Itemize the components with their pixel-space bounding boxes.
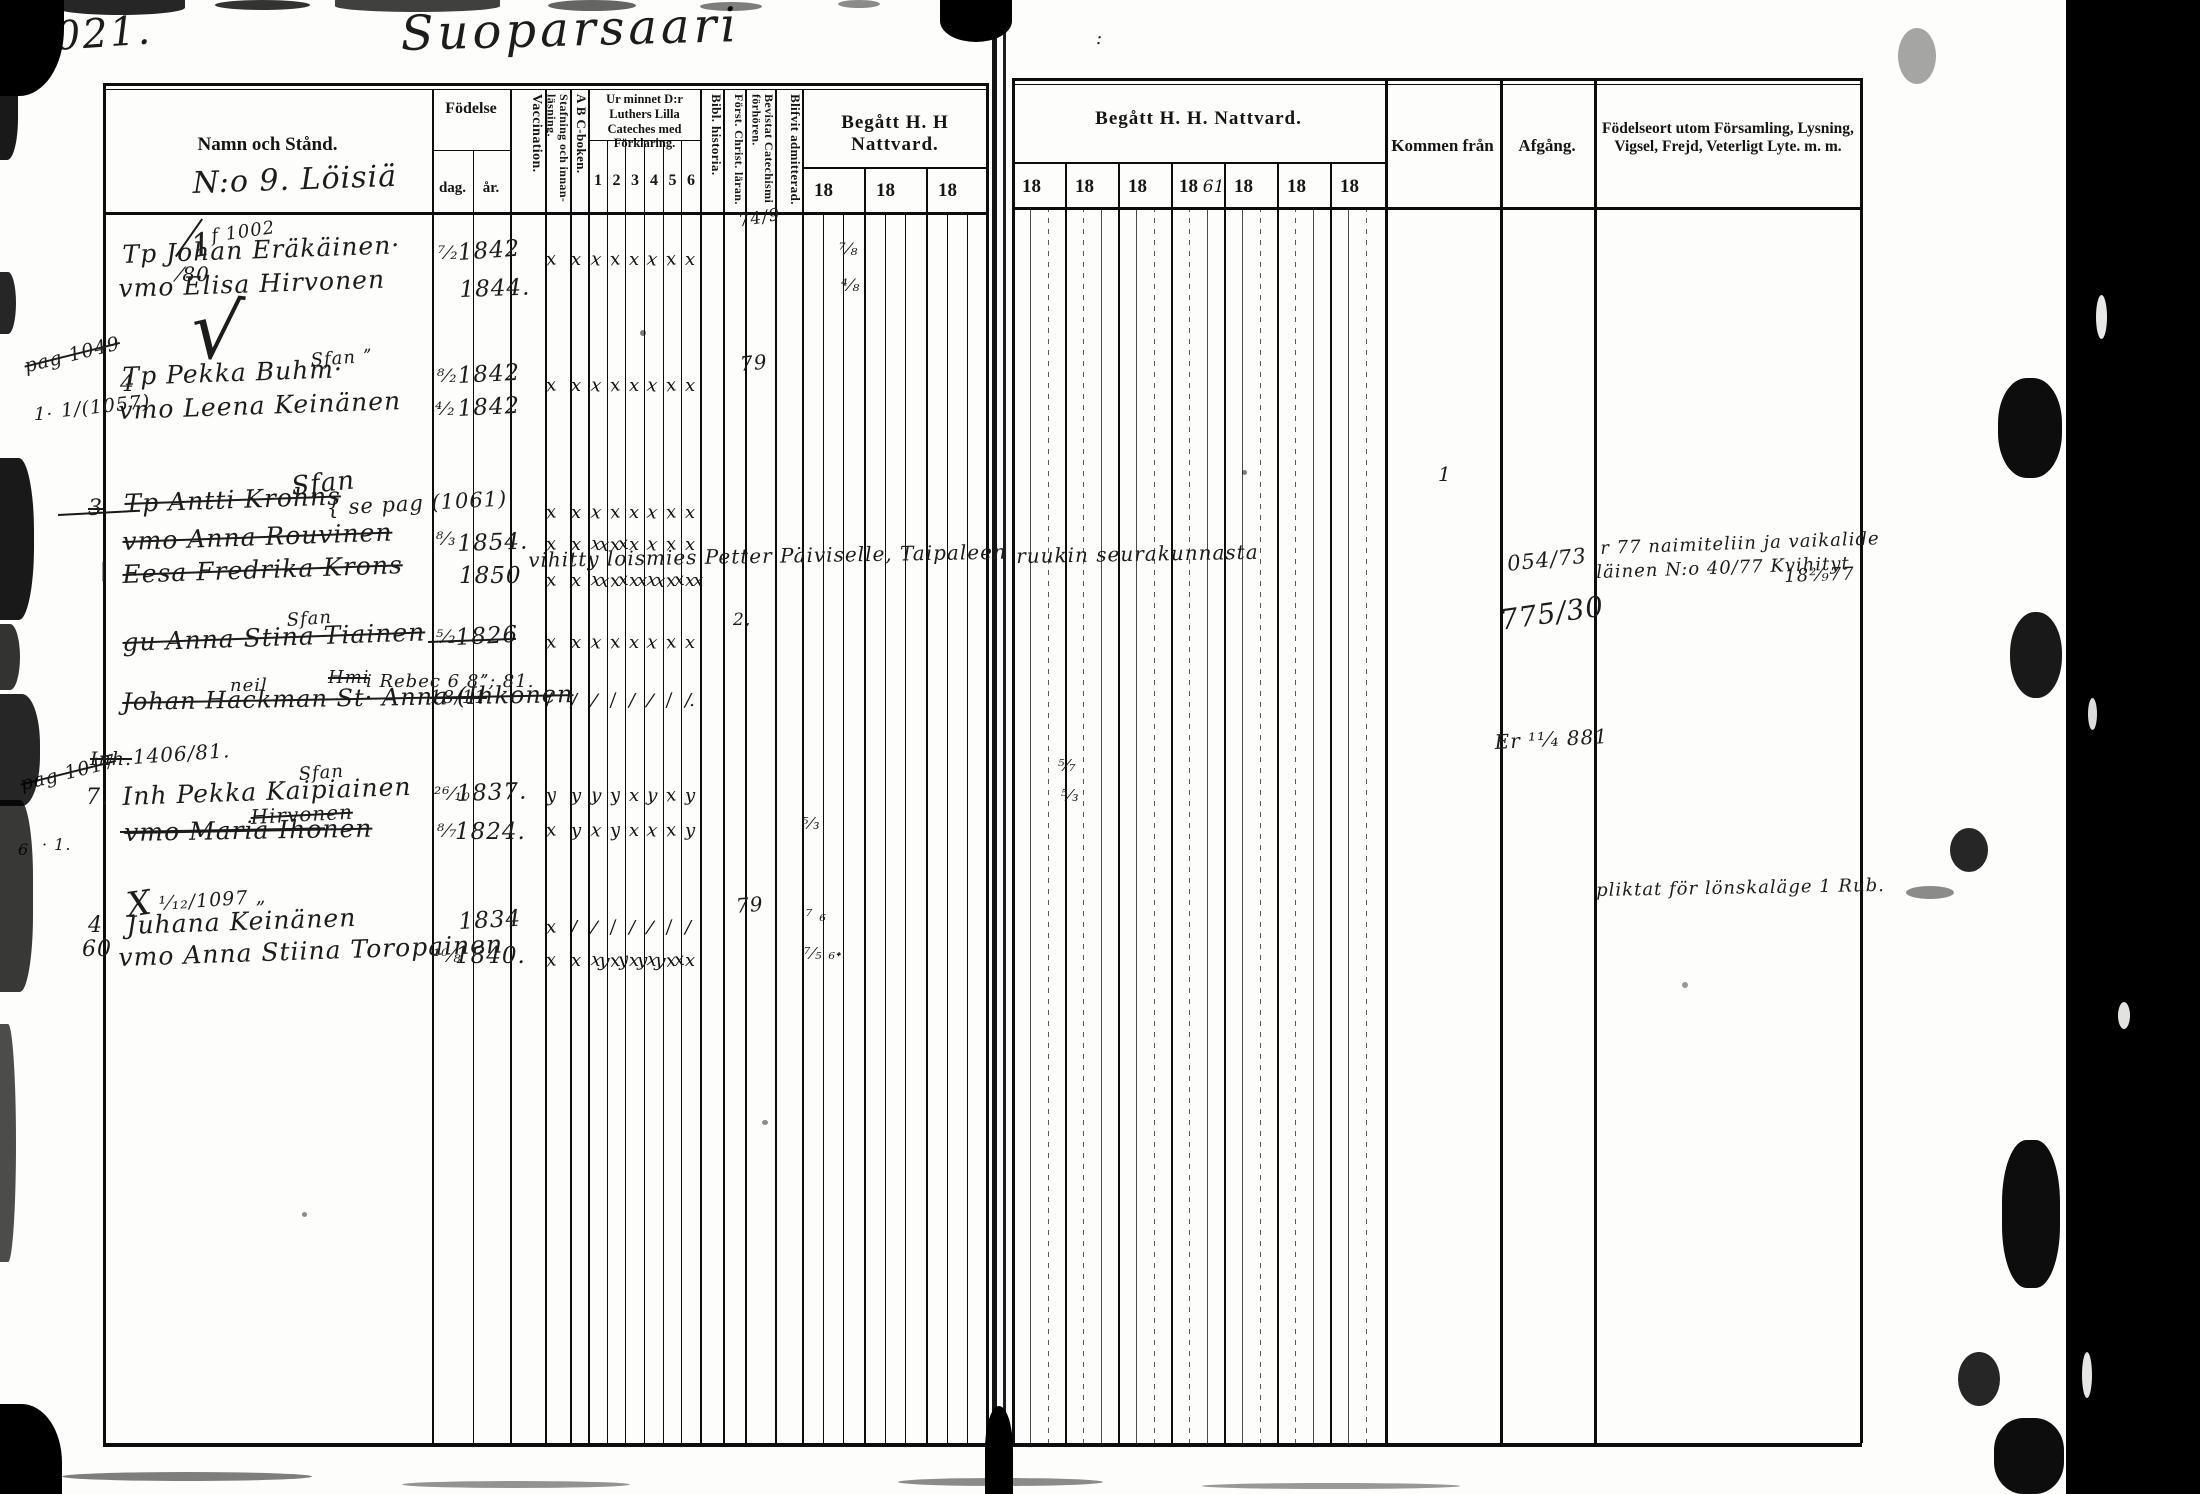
grid-line-vertical bbox=[926, 167, 928, 1443]
col-header-3: 3 bbox=[626, 172, 644, 191]
handwritten-note: 60 bbox=[82, 937, 112, 962]
check-mark: x bbox=[629, 375, 637, 396]
check-mark: x bbox=[685, 632, 693, 653]
check-mark: x bbox=[590, 632, 601, 654]
handwritten-note: ⁄80 bbox=[178, 262, 210, 286]
parish-register-scan: 1021. Suoparsaari Namn och Stånd. N:o 9.… bbox=[0, 0, 2200, 1494]
check-mark: / bbox=[665, 917, 672, 938]
scan-noise-blob bbox=[2096, 295, 2107, 339]
col-header-year-18: 18 bbox=[876, 180, 926, 202]
check-mark: x bbox=[571, 534, 579, 555]
handwritten-note: Sfan bbox=[298, 761, 345, 785]
grid-line-horizontal bbox=[1012, 78, 1862, 81]
grid-line-horizontal bbox=[1012, 207, 1862, 210]
check-mark: xx bbox=[629, 570, 645, 591]
scan-noise-blob bbox=[302, 1212, 307, 1217]
handwritten-note: 7. bbox=[86, 785, 109, 810]
col-header-fodelseort: Födelseort utom Församling, Lysning, Vig… bbox=[1594, 120, 1862, 157]
grid-line-vertical bbox=[1012, 78, 1015, 1443]
handwritten-note: : bbox=[1096, 28, 1103, 49]
grid-line-horizontal bbox=[1012, 162, 1385, 164]
check-mark: x bbox=[629, 534, 637, 555]
scan-noise-blob bbox=[0, 90, 18, 160]
check-mark: x bbox=[571, 502, 579, 523]
check-mark: x bbox=[590, 820, 601, 842]
scan-noise-blob bbox=[0, 800, 33, 992]
handwritten-note: 79 bbox=[739, 350, 768, 376]
handwritten-note: 1850 bbox=[459, 563, 522, 589]
grid-line-vertical bbox=[1118, 162, 1120, 1443]
year-handwritten-annotation: 61 bbox=[1203, 177, 1225, 197]
scan-noise-blob bbox=[402, 1481, 630, 1488]
check-mark: x bbox=[609, 375, 620, 397]
page-fold-line bbox=[1003, 0, 1006, 1494]
check-mark: x bbox=[590, 502, 601, 524]
handwritten-note: vmo Leena Keinänen bbox=[118, 386, 402, 425]
check-mark: x bbox=[571, 375, 579, 396]
scan-noise-blob bbox=[1994, 1418, 2064, 1494]
grid-subline-vertical bbox=[1083, 207, 1084, 1443]
check-mark: /. bbox=[685, 690, 693, 711]
check-mark: xx bbox=[609, 533, 628, 556]
check-mark: / bbox=[571, 917, 575, 938]
handwritten-note: 1· bbox=[34, 404, 53, 425]
handwritten-note: vmo Anna Rouvinen bbox=[122, 518, 393, 556]
check-mark: x bbox=[665, 375, 676, 397]
grid-line-vertical bbox=[432, 89, 434, 1443]
grid-line-vertical bbox=[625, 140, 626, 1443]
check-mark: / bbox=[646, 690, 653, 711]
grid-subline-vertical bbox=[1348, 207, 1349, 1443]
handwritten-note: 054/73 bbox=[1506, 544, 1588, 576]
check-mark: x bbox=[571, 570, 579, 591]
scan-noise-blob bbox=[1682, 982, 1688, 988]
scan-noise-blob bbox=[2118, 1002, 2130, 1029]
check-mark: x bbox=[545, 820, 556, 842]
col-header-namn-och-stand: Namn och Stånd. bbox=[103, 134, 432, 156]
handwritten-note: 1837. bbox=[456, 779, 528, 807]
grid-line-vertical bbox=[663, 140, 664, 1443]
grid-subline-vertical bbox=[1048, 207, 1049, 1443]
check-mark: x bbox=[545, 570, 556, 592]
grid-subline-vertical bbox=[1189, 207, 1190, 1443]
check-mark: x bbox=[571, 249, 579, 270]
col-header-year-18: 18 bbox=[814, 180, 864, 202]
check-mark: x bbox=[685, 375, 693, 396]
scan-noise-blob bbox=[0, 1024, 16, 1262]
handwritten-note: vmo Elisa Hirvonen bbox=[118, 265, 386, 303]
year-printed: 18 bbox=[1179, 176, 1198, 197]
grid-line-vertical bbox=[864, 167, 866, 1443]
fodelseort-line1: Födelseort utom Församling, Lysning, bbox=[1594, 120, 1862, 138]
grid-subline-vertical bbox=[1295, 207, 1296, 1443]
handwritten-note: 18²⁄₉77 bbox=[1784, 564, 1855, 587]
handwritten-note: 3 bbox=[88, 496, 103, 521]
handwritten-note: ⁴⁄₈ bbox=[841, 276, 860, 296]
grid-line-vertical bbox=[823, 215, 824, 1443]
handwritten-note: ⁵⁄₃ bbox=[1061, 786, 1080, 805]
scan-noise-blob bbox=[1242, 470, 1247, 475]
check-mark: x bbox=[609, 502, 620, 524]
scan-noise-blob bbox=[55, 0, 185, 15]
check-mark: xx bbox=[665, 949, 684, 972]
scan-noise-blob bbox=[548, 0, 636, 11]
check-mark: x bbox=[646, 502, 657, 524]
check-mark: x bbox=[685, 249, 693, 270]
grid-line-horizontal bbox=[802, 167, 988, 169]
check-mark: xy bbox=[609, 949, 628, 972]
grid-subline-vertical bbox=[1207, 207, 1208, 1443]
check-mark: x bbox=[609, 249, 620, 271]
col-header-year-18: 18 bbox=[1340, 176, 1359, 198]
check-mark: x bbox=[545, 534, 556, 556]
col-header-4: 4 bbox=[645, 172, 663, 191]
handwritten-note: ⁷⁄₅ ₆˖ bbox=[804, 944, 843, 963]
grid-line-vertical bbox=[723, 89, 725, 1443]
scan-noise-blob bbox=[898, 1478, 1103, 1486]
grid-line-vertical bbox=[607, 140, 608, 1443]
check-mark: x bbox=[571, 632, 579, 653]
scan-noise-blob bbox=[2082, 1352, 2092, 1398]
handwritten-note: Johan Hackman St· Anna (Ihkonen bbox=[122, 680, 574, 716]
check-mark: xx bbox=[609, 569, 628, 592]
check-mark: y bbox=[571, 820, 579, 841]
check-mark: x bbox=[590, 249, 601, 271]
check-mark: x bbox=[685, 950, 693, 971]
check-mark: / bbox=[646, 917, 653, 938]
handwritten-note: 1842 bbox=[457, 236, 521, 266]
check-mark: x bbox=[545, 950, 556, 972]
grid-subline-vertical bbox=[1313, 207, 1314, 1443]
check-mark: xx bbox=[685, 570, 701, 591]
col-header-afgang: Afgång. bbox=[1500, 136, 1594, 156]
grid-line-horizontal bbox=[103, 1443, 988, 1447]
grid-line-horizontal bbox=[1012, 84, 1862, 85]
handwritten-note: ruukin seurakunnasta bbox=[1016, 540, 1259, 568]
handwritten-note: 1854. bbox=[457, 529, 529, 557]
page-fold-line bbox=[992, 0, 997, 1494]
col-header-fodelse: Födelse bbox=[432, 100, 510, 119]
check-mark: / bbox=[590, 690, 597, 711]
scan-noise-blob bbox=[838, 0, 880, 8]
check-mark: x bbox=[646, 249, 657, 271]
handwritten-note: Eesa Fredrika Krons bbox=[122, 550, 403, 589]
scan-noise-blob bbox=[1958, 1352, 2000, 1406]
check-mark: x bbox=[629, 249, 637, 270]
handwritten-note: · 1. bbox=[42, 835, 71, 854]
handwritten-note: 1406/81. bbox=[132, 738, 231, 769]
scan-noise-blob bbox=[215, 0, 310, 10]
check-mark: x bbox=[665, 820, 676, 842]
check-mark: x bbox=[646, 375, 657, 397]
check-mark: y bbox=[609, 820, 620, 842]
handwritten-note: ⁵⁄₃ bbox=[802, 814, 821, 833]
handwritten-note: 18/11 bbox=[430, 687, 487, 708]
handwritten-note: 1826 bbox=[455, 622, 519, 651]
col-header-year-18: 18 bbox=[1022, 176, 1041, 198]
check-mark: x bbox=[646, 632, 657, 654]
check-mark: / bbox=[629, 917, 633, 938]
check-mark: x bbox=[646, 820, 657, 842]
grid-subline-vertical bbox=[1366, 207, 1367, 1443]
col-header-year-18: 18 bbox=[938, 180, 988, 202]
grid-line-vertical bbox=[1594, 78, 1597, 1443]
grid-line-vertical bbox=[1860, 78, 1863, 1443]
scan-noise-blob bbox=[0, 272, 16, 334]
scan-noise-blob bbox=[1950, 828, 1988, 872]
check-mark: x bbox=[609, 632, 620, 654]
check-mark: x bbox=[590, 375, 601, 397]
handwritten-note: Sfan ˮ bbox=[310, 346, 373, 371]
grid-line-vertical bbox=[775, 89, 777, 1443]
handwritten-note: | bbox=[100, 558, 108, 582]
check-mark: / bbox=[665, 690, 672, 711]
handwritten-note: ⁷ ₆ bbox=[806, 906, 827, 925]
handwritten-note: Er ¹¹⁄₄ 881 bbox=[1494, 724, 1609, 754]
grid-line-horizontal bbox=[103, 83, 988, 86]
handwritten-note: ⁵⁄₂ bbox=[436, 627, 456, 648]
check-mark: x bbox=[629, 632, 637, 653]
check-mark: x bbox=[545, 917, 556, 939]
check-mark: x bbox=[629, 820, 637, 841]
check-mark: xy bbox=[590, 949, 609, 972]
fodelseort-line2: Vigsel, Frejd, Veterligt Lyte. m. m. bbox=[1594, 138, 1862, 156]
check-mark: / bbox=[590, 917, 597, 938]
grid-line-vertical bbox=[843, 215, 844, 1443]
grid-line-vertical bbox=[947, 215, 948, 1443]
check-mark: x bbox=[665, 785, 676, 807]
col-header-forst-christ-laran: Först. Christ. läran. bbox=[724, 94, 745, 210]
check-mark: y bbox=[685, 785, 693, 806]
check-mark: y bbox=[609, 785, 620, 807]
check-mark: / bbox=[609, 690, 616, 711]
grid-line-horizontal bbox=[432, 150, 510, 151]
scan-noise-blob bbox=[2002, 1140, 2060, 1288]
handwritten-note: 1842 bbox=[457, 393, 521, 422]
grid-line-vertical bbox=[1385, 78, 1388, 1443]
check-mark: x bbox=[629, 785, 637, 806]
grid-line-vertical bbox=[1500, 78, 1503, 1443]
check-mark: / bbox=[629, 690, 633, 711]
check-mark: xy bbox=[646, 949, 665, 972]
check-mark: / bbox=[609, 917, 616, 938]
check-mark: x bbox=[685, 534, 693, 555]
grid-line-vertical bbox=[681, 140, 682, 1443]
grid-subline-vertical bbox=[1154, 207, 1155, 1443]
scan-noise-blob bbox=[335, 0, 500, 12]
handwritten-note: 2, bbox=[733, 610, 751, 630]
grid-line-horizontal bbox=[1012, 1443, 1862, 1447]
col-header-begatt-nattvard-right: Begått H. H. Nattvard. bbox=[1012, 108, 1385, 130]
scan-noise-blob bbox=[640, 330, 646, 336]
check-mark: x bbox=[665, 534, 676, 556]
check-mark: y bbox=[545, 785, 556, 807]
scan-noise-blob bbox=[700, 2, 762, 11]
col-header-year-18: 18 bbox=[1128, 176, 1147, 198]
grid-line-vertical bbox=[700, 89, 702, 1443]
scan-noise-blob bbox=[2010, 612, 2062, 698]
grid-line-vertical bbox=[1171, 162, 1173, 1443]
handwritten-note: 1842 bbox=[457, 360, 521, 389]
col-header-bibl-historia: Bibl. historia. bbox=[701, 94, 723, 210]
check-mark: y bbox=[590, 785, 601, 807]
grid-line-vertical bbox=[802, 89, 804, 1443]
grid-line-vertical bbox=[545, 89, 547, 1443]
scan-noise-blob bbox=[2066, 0, 2200, 1494]
handwritten-note: ⁷⁄₈ bbox=[839, 240, 858, 260]
col-header-vaccination: Vaccination. bbox=[515, 94, 543, 210]
grid-subline-vertical bbox=[1260, 207, 1261, 1443]
handwritten-note: pag 1049 bbox=[22, 332, 122, 377]
grid-line-vertical bbox=[588, 89, 590, 1443]
check-mark: x bbox=[665, 502, 676, 524]
check-mark: xy bbox=[629, 950, 645, 971]
col-header-begatt-nattvard-left: Begått H. H Nattvard. bbox=[802, 112, 988, 157]
namn-column-annotation: N:o 9. Löisiä bbox=[192, 159, 398, 201]
grid-subline-vertical bbox=[1136, 207, 1137, 1443]
grid-line-vertical bbox=[1277, 162, 1279, 1443]
scan-noise-blob bbox=[0, 624, 20, 690]
check-mark: y bbox=[646, 785, 657, 807]
grid-subline-vertical bbox=[1242, 207, 1243, 1443]
scan-noise-blob bbox=[62, 1472, 312, 1481]
handwritten-note: 1 bbox=[1438, 462, 1452, 486]
handwritten-note: ⁴⁄₂ bbox=[435, 399, 455, 420]
handwritten-note: 775/30 bbox=[1498, 589, 1606, 636]
check-mark: x bbox=[545, 375, 556, 397]
check-mark: / bbox=[685, 917, 689, 938]
grid-line-vertical bbox=[986, 83, 989, 1443]
handwritten-note: ⁵⁄₇ bbox=[1058, 756, 1077, 775]
check-mark: xx bbox=[646, 569, 665, 592]
scan-noise-blob bbox=[0, 458, 34, 620]
col-header-ar: år. bbox=[472, 180, 510, 198]
handwritten-note: ⁷⁄₂ bbox=[438, 243, 458, 264]
check-mark: x bbox=[545, 502, 556, 524]
grid-line-horizontal bbox=[588, 140, 700, 141]
check-mark: x bbox=[629, 502, 637, 523]
col-header-year-18-61: 18 61 bbox=[1179, 176, 1224, 198]
handwritten-note: gu Anna Stina Tiainen bbox=[122, 617, 426, 657]
grid-line-vertical bbox=[1224, 162, 1226, 1443]
scan-noise-blob bbox=[940, 0, 1012, 42]
check-mark: y bbox=[571, 785, 579, 806]
check-mark: x bbox=[685, 502, 693, 523]
check-mark: x bbox=[545, 632, 556, 654]
col-header-1: 1 bbox=[589, 172, 607, 191]
handwritten-note: ⁸⁄₃ bbox=[436, 529, 456, 550]
check-mark: xx bbox=[590, 533, 609, 556]
check-mark: x bbox=[665, 632, 676, 654]
handwritten-note: 4 bbox=[88, 913, 103, 938]
grid-subline-vertical bbox=[1101, 207, 1102, 1443]
col-header-bevistat-catechismi: Bevistat Catechismi förhören. bbox=[747, 94, 775, 210]
col-header-6: 6 bbox=[682, 172, 700, 191]
col-header-abc-boken: A B C-boken. bbox=[570, 94, 588, 210]
check-mark: xx bbox=[665, 569, 684, 592]
scan-noise-blob bbox=[1898, 28, 1936, 84]
handwritten-note: Tp Johan Eräkäinen· bbox=[122, 230, 401, 269]
col-header-blifvit-admitterad: Blifvit admitterad. bbox=[777, 94, 802, 210]
scan-noise-blob bbox=[1906, 886, 1954, 899]
check-mark: x bbox=[571, 950, 579, 971]
grid-line-horizontal bbox=[103, 212, 988, 215]
grid-line-vertical bbox=[1330, 162, 1332, 1443]
grid-line-vertical bbox=[967, 215, 968, 1443]
scan-noise-blob bbox=[1202, 1483, 1460, 1489]
col-header-dag: dag. bbox=[433, 180, 472, 198]
col-header-year-18: 18 bbox=[1234, 176, 1253, 198]
check-mark: / bbox=[571, 690, 575, 711]
col-header-2: 2 bbox=[608, 172, 625, 191]
col-header-stafning: Stafning och innan-läsning. bbox=[545, 94, 570, 210]
handwritten-note: 1844. bbox=[459, 275, 531, 303]
check-mark: xx bbox=[590, 569, 609, 592]
grid-line-vertical bbox=[745, 89, 747, 1443]
scan-noise-blob bbox=[0, 694, 40, 806]
scan-noise-blob bbox=[2088, 698, 2097, 730]
col-header-year-18: 18 bbox=[1075, 176, 1094, 198]
check-mark: y bbox=[685, 820, 693, 841]
handwritten-note: 79 bbox=[735, 892, 764, 918]
col-header-year-18: 18 bbox=[1287, 176, 1306, 198]
col-header-kommen-fran: Kommen från bbox=[1385, 136, 1500, 156]
scan-noise-blob bbox=[1998, 378, 2062, 478]
grid-line-vertical bbox=[885, 215, 886, 1443]
handwritten-note: ⁸⁄₂ bbox=[437, 366, 457, 387]
grid-subline-vertical bbox=[1030, 207, 1031, 1443]
grid-line-vertical bbox=[905, 215, 906, 1443]
col-header-5: 5 bbox=[664, 172, 681, 191]
check-mark: x bbox=[545, 249, 556, 271]
grid-line-horizontal bbox=[103, 89, 988, 90]
scan-noise-blob bbox=[0, 0, 64, 96]
handwritten-note: 1840. bbox=[455, 943, 526, 969]
scan-noise-blob bbox=[762, 1120, 768, 1125]
handwritten-note: 1824. bbox=[455, 819, 526, 845]
handwritten-note: pliktat för lönskaläge 1 Rub. bbox=[1596, 875, 1885, 901]
check-mark: x bbox=[665, 249, 676, 271]
scan-noise-blob bbox=[0, 1404, 62, 1494]
grid-line-vertical bbox=[570, 89, 572, 1443]
